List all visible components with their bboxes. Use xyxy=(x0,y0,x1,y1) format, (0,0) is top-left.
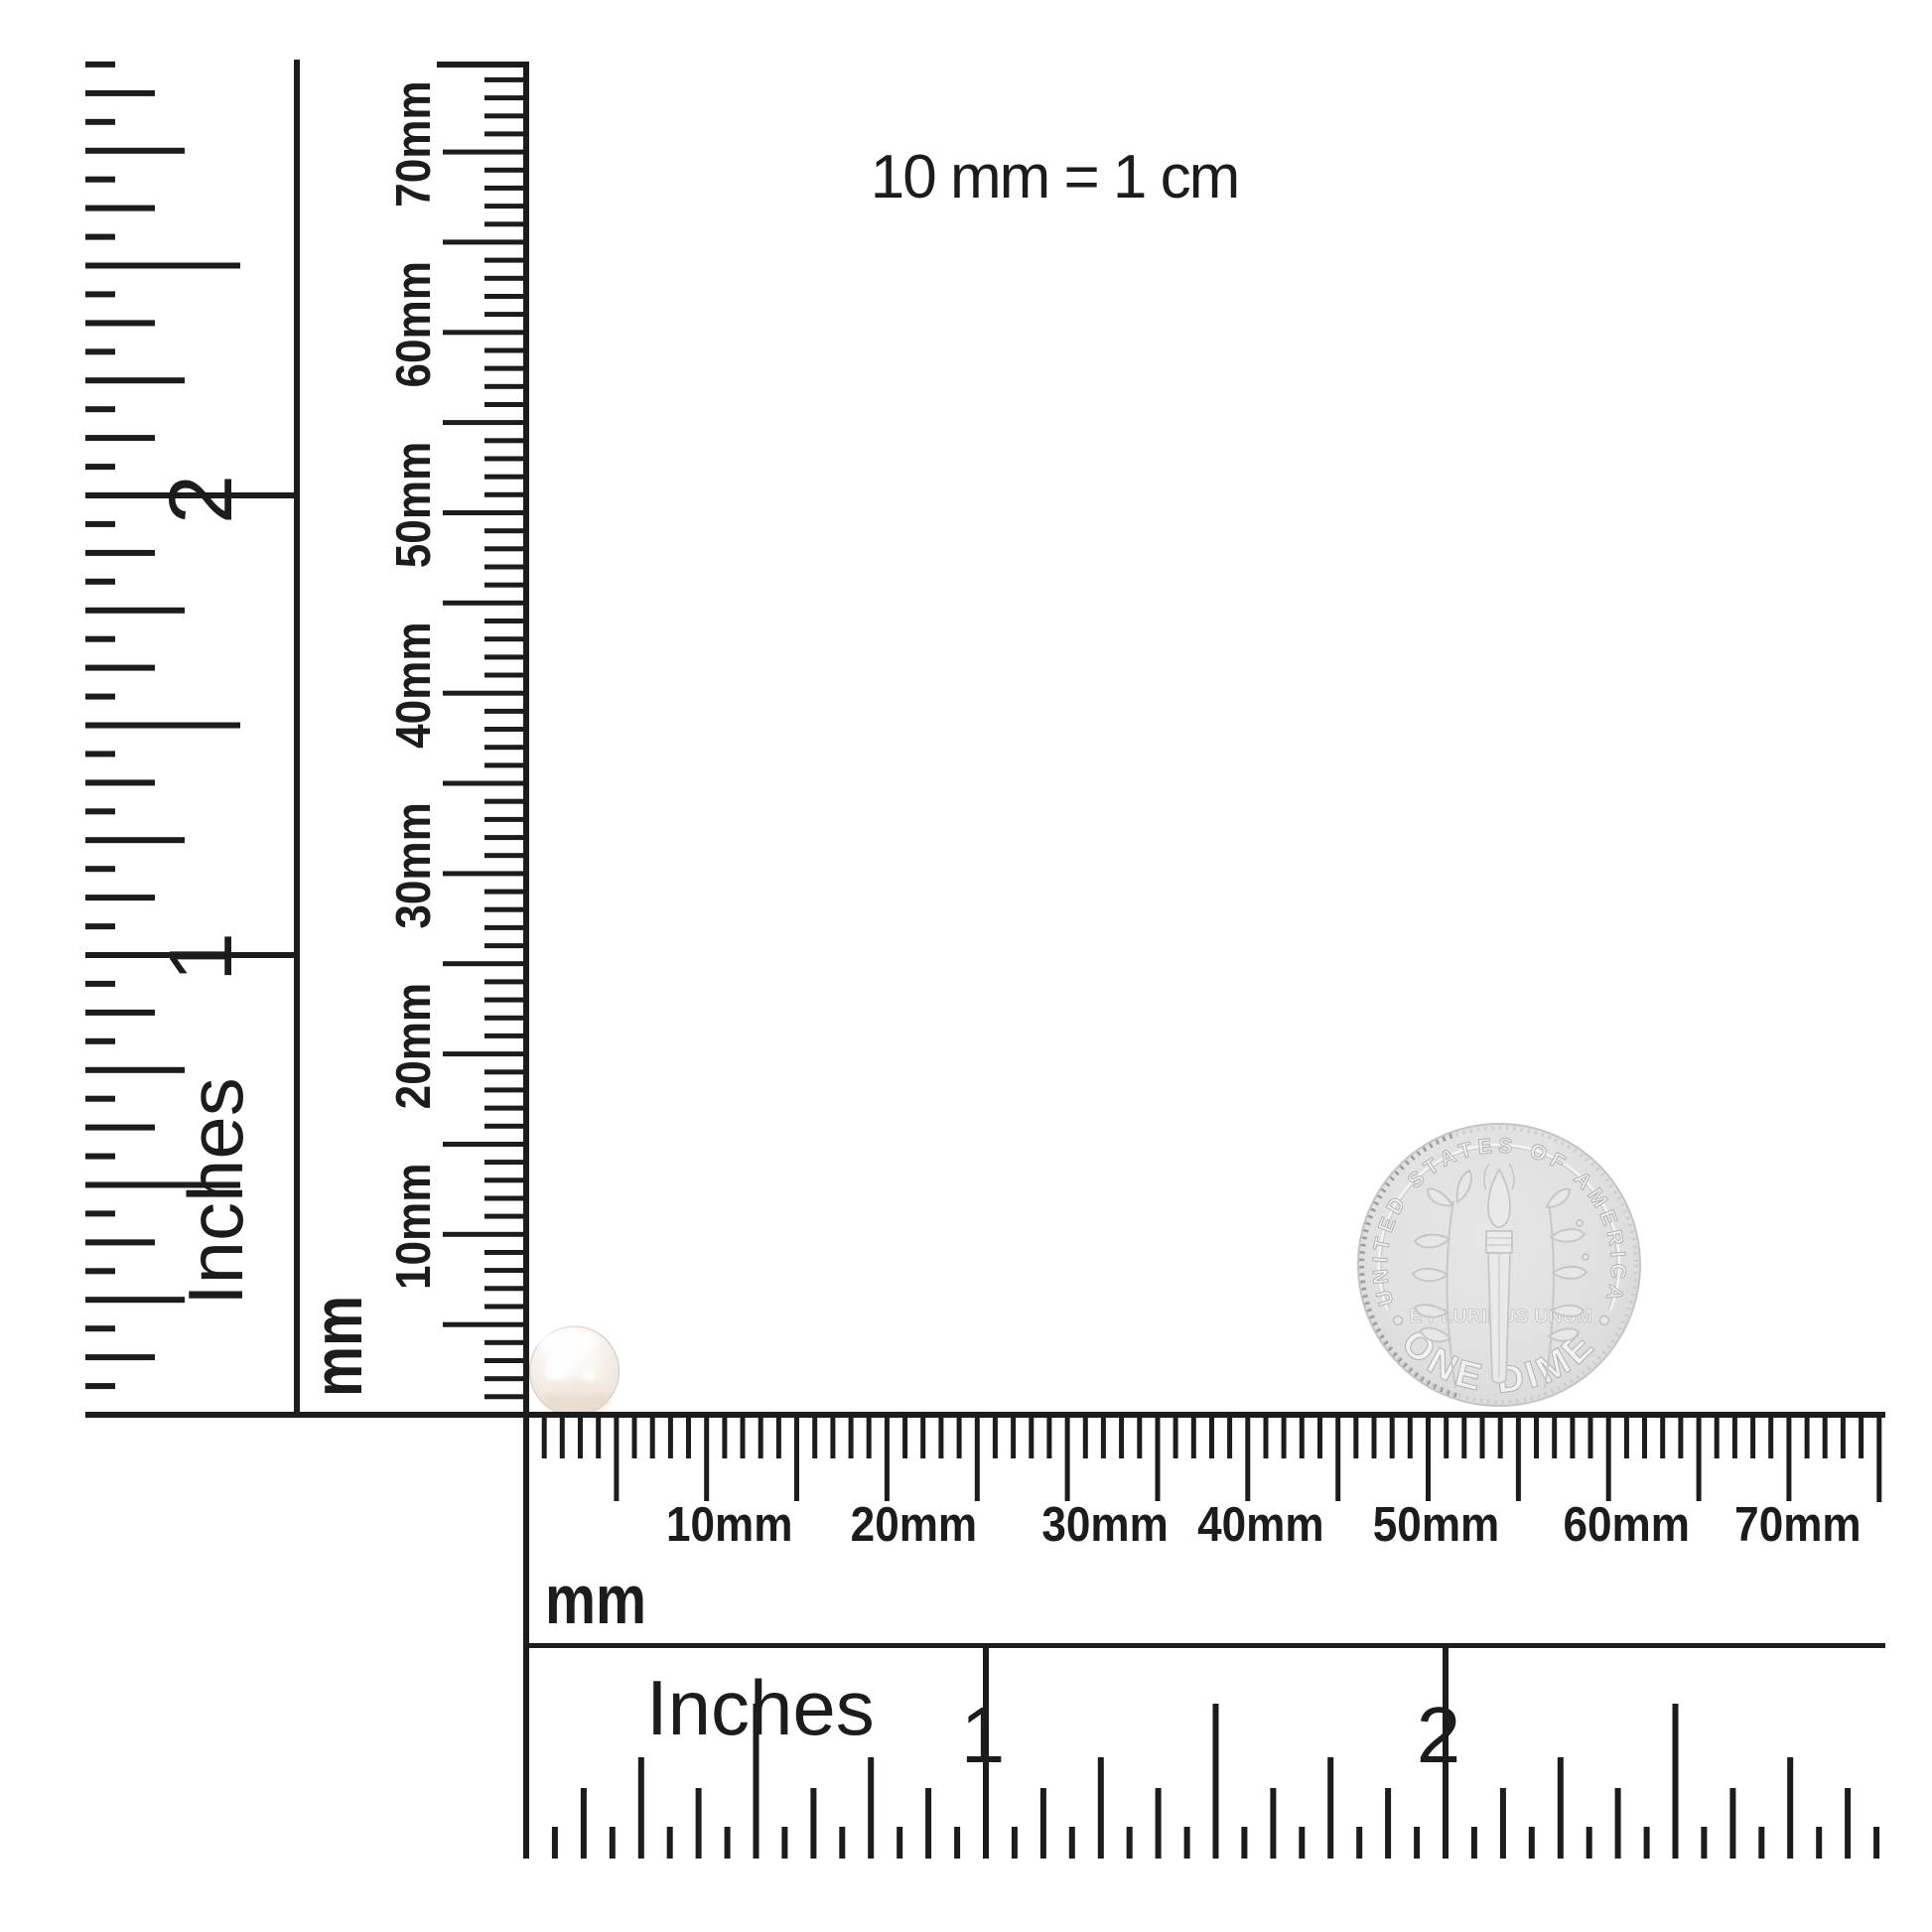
svg-text:50mm: 50mm xyxy=(1373,1497,1499,1552)
svg-text:50mm: 50mm xyxy=(386,442,441,568)
svg-text:60mm: 60mm xyxy=(1563,1497,1689,1552)
svg-text:Inches: Inches xyxy=(646,1664,875,1751)
svg-text:30mm: 30mm xyxy=(1041,1497,1168,1552)
svg-text:mm: mm xyxy=(299,1296,377,1397)
svg-text:Inches: Inches xyxy=(172,1077,259,1306)
svg-text:2: 2 xyxy=(1417,1691,1461,1779)
svg-text:1: 1 xyxy=(961,1691,1006,1779)
svg-text:mm: mm xyxy=(545,1561,646,1639)
svg-text:60mm: 60mm xyxy=(386,261,441,387)
svg-text:10mm: 10mm xyxy=(386,1164,441,1290)
svg-text:40mm: 40mm xyxy=(1197,1497,1323,1552)
svg-text:30mm: 30mm xyxy=(386,802,441,928)
svg-text:20mm: 20mm xyxy=(851,1497,977,1552)
svg-text:10mm: 10mm xyxy=(666,1497,792,1552)
svg-text:40mm: 40mm xyxy=(386,621,441,748)
svg-text:2: 2 xyxy=(152,475,251,524)
svg-text:20mm: 20mm xyxy=(386,983,441,1109)
svg-text:70mm: 70mm xyxy=(1734,1497,1861,1552)
svg-text:10 mm = 1 cm: 10 mm = 1 cm xyxy=(871,143,1239,211)
svg-text:1: 1 xyxy=(152,932,251,982)
svg-text:70mm: 70mm xyxy=(386,80,441,207)
